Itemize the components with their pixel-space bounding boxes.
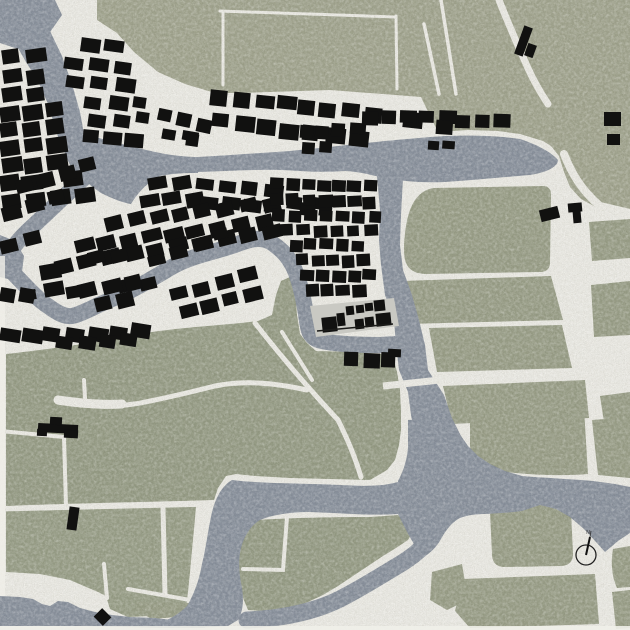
svg-text:N: N: [586, 530, 590, 536]
